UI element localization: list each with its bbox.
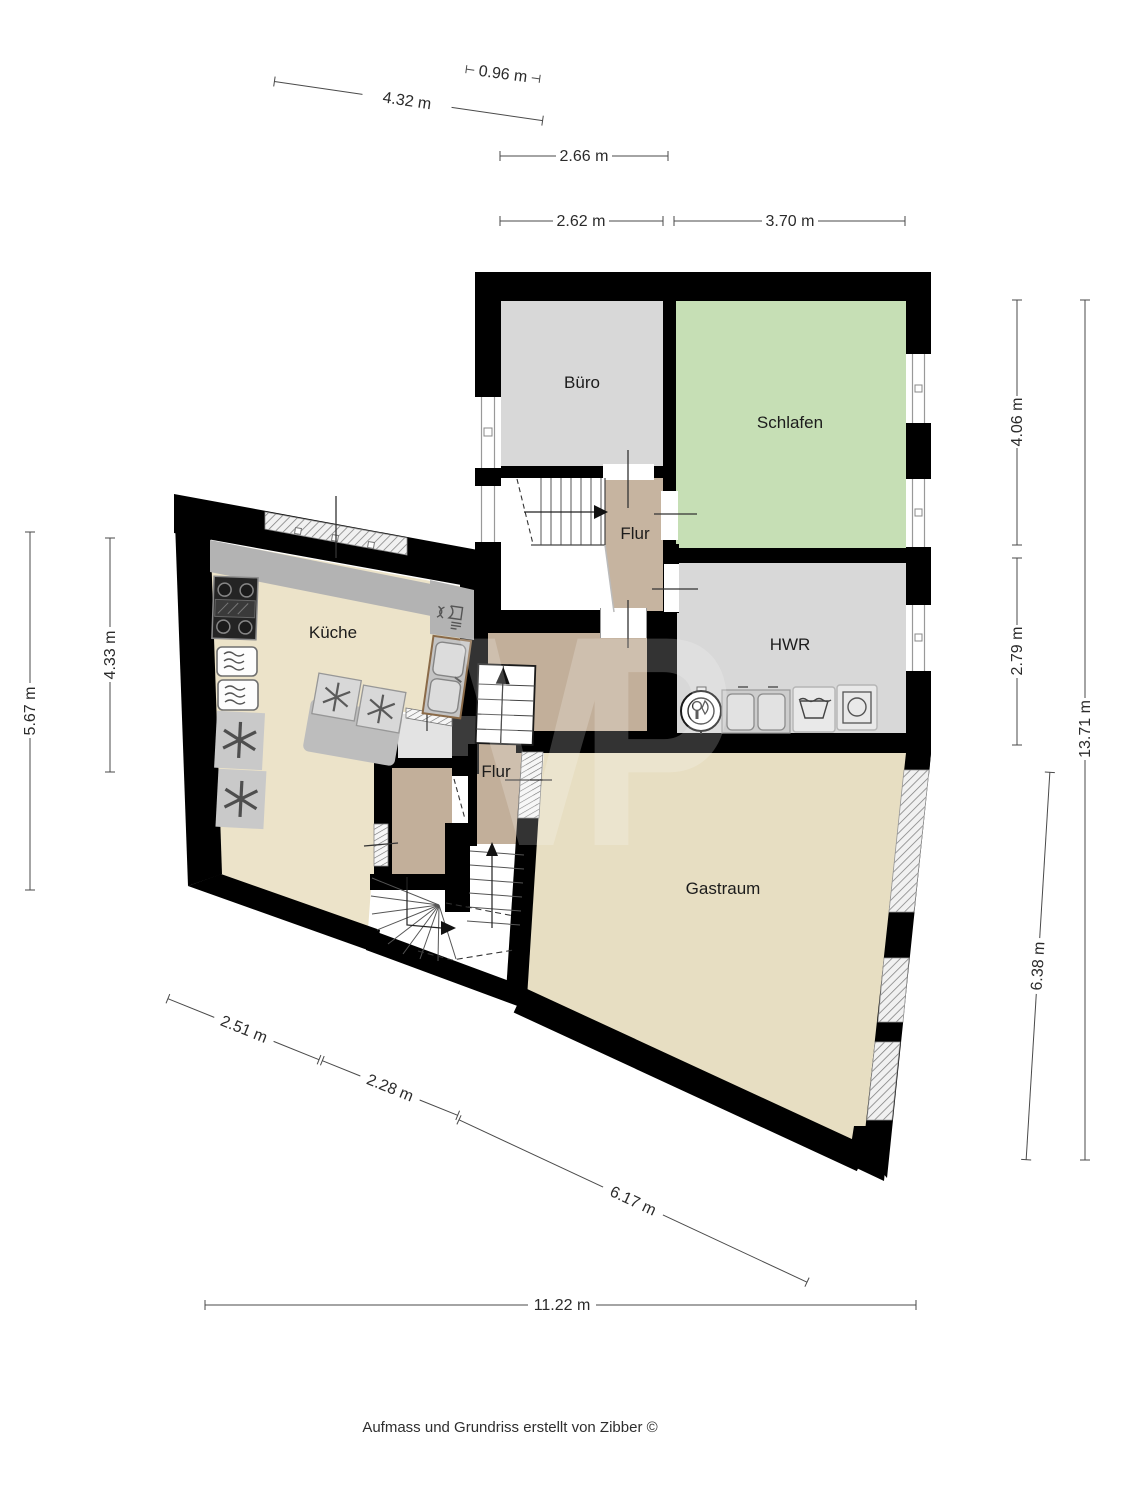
svg-text:Büro: Büro bbox=[564, 373, 600, 392]
svg-text:2.62 m: 2.62 m bbox=[557, 213, 606, 230]
svg-text:3.70 m: 3.70 m bbox=[766, 213, 815, 230]
svg-text:6.38 m: 6.38 m bbox=[1029, 941, 1049, 991]
svg-text:HWR: HWR bbox=[770, 635, 811, 654]
svg-text:2.66 m: 2.66 m bbox=[560, 148, 609, 165]
svg-text:11.22 m: 11.22 m bbox=[534, 1297, 591, 1314]
svg-text:13.71 m: 13.71 m bbox=[1077, 700, 1094, 758]
svg-text:4.33 m: 4.33 m bbox=[102, 631, 119, 680]
svg-text:Gastraum: Gastraum bbox=[686, 879, 761, 898]
svg-text:Flur: Flur bbox=[481, 762, 511, 781]
svg-text:Küche: Küche bbox=[309, 623, 357, 642]
svg-text:4.06 m: 4.06 m bbox=[1009, 398, 1026, 447]
svg-text:VP: VP bbox=[458, 574, 729, 910]
svg-text:5.67 m: 5.67 m bbox=[22, 687, 39, 736]
svg-text:Aufmass und Grundriss erstellt: Aufmass und Grundriss erstellt von Zibbe… bbox=[362, 1419, 657, 1436]
svg-text:2.79 m: 2.79 m bbox=[1009, 627, 1026, 676]
svg-text:Schlafen: Schlafen bbox=[757, 413, 823, 432]
svg-text:Flur: Flur bbox=[620, 524, 650, 543]
